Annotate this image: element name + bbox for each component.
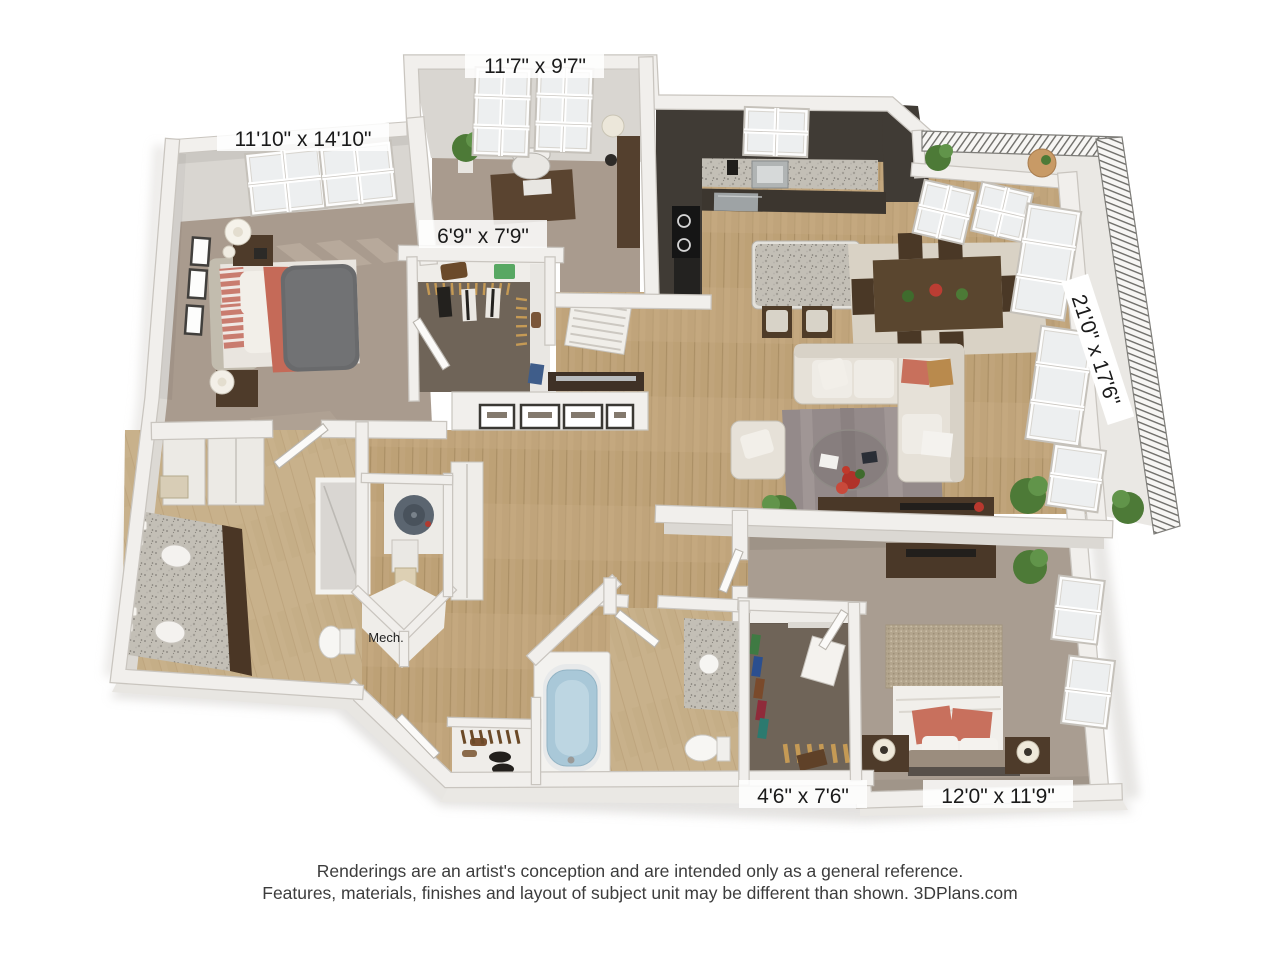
svg-text:11'7" x 9'7": 11'7" x 9'7" bbox=[484, 55, 586, 78]
svg-text:6'9" x 7'9": 6'9" x 7'9" bbox=[437, 225, 529, 248]
svg-text:12'0" x 11'9": 12'0" x 11'9" bbox=[941, 785, 1055, 808]
svg-text:Features, materials, finishes: Features, materials, finishes and layout… bbox=[262, 883, 1018, 903]
svg-text:4'6" x 7'6": 4'6" x 7'6" bbox=[757, 785, 849, 808]
svg-text:11'10" x 14'10": 11'10" x 14'10" bbox=[235, 128, 372, 151]
svg-text:Renderings are an artist's con: Renderings are an artist's conception an… bbox=[317, 861, 963, 881]
svg-text:Mech.: Mech. bbox=[368, 630, 403, 645]
